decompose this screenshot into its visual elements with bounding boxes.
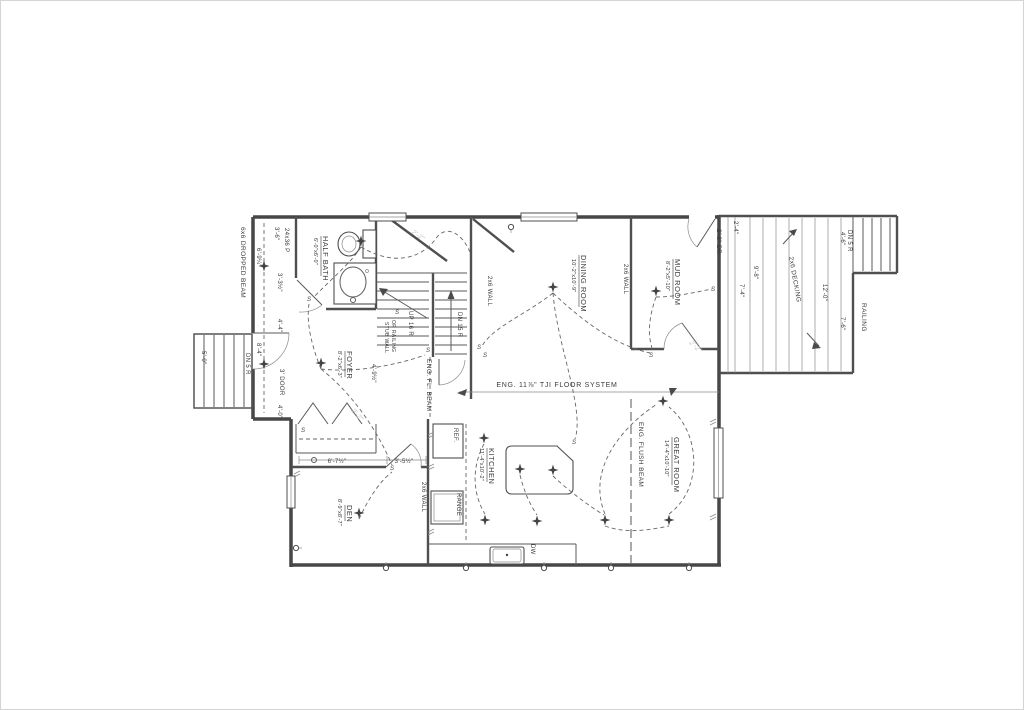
window-den-left [287, 476, 295, 508]
annotations: ENG. 11⅞" TJI FLOOR SYSTEM ENG. FLUSH BE… [239, 227, 867, 555]
svg-text:8'-2"x5'-10": 8'-2"x5'-10" [664, 261, 670, 291]
dim-deck-stairs: 4'-6" [839, 232, 845, 245]
reference-lines [264, 223, 719, 563]
tji-leader [457, 388, 719, 396]
basement-door [439, 359, 465, 385]
switch-symbol: S [711, 287, 715, 293]
room-label-mud-room: MUD ROOM 8'-2"x5'-10" [664, 259, 682, 306]
mud-deck-door [688, 219, 715, 247]
stub-wall-note-1: STUB WALL [383, 322, 389, 353]
svg-text:8'-2"x6'-3": 8'-2"x6'-3" [336, 351, 342, 378]
stub-wall-note-2: OR RAILING [390, 320, 396, 352]
pencil-note: 2'-2" [687, 339, 703, 355]
switch-symbol: S [395, 310, 399, 316]
toilet [338, 230, 376, 258]
svg-text:14'-4"x10'-10": 14'-4"x10'-10" [663, 440, 669, 477]
pencil-note: 2'-2" [409, 228, 426, 243]
front-porch [194, 334, 252, 408]
dim-deck-a: 2'-4" [732, 221, 738, 234]
svg-text:HALF BATH: HALF BATH [321, 236, 330, 281]
deck [719, 216, 897, 373]
railing-note: RAILING [860, 303, 867, 332]
switch-symbol: S [307, 297, 311, 303]
floor-plan-drawing: S S S S S S S S S S HALF BATH 6'-0"x6'-0… [1, 1, 1024, 710]
stair-up-arrow [383, 291, 427, 318]
svg-text:MUD ROOM: MUD ROOM [673, 259, 682, 306]
switch-symbol: S [477, 345, 481, 351]
dim-hall-top: 3'-6" [273, 227, 279, 240]
half-bath-fixtures [334, 230, 376, 304]
switches: S S S S S S S S S S [301, 287, 715, 472]
dw-label: DW [529, 544, 535, 555]
flush-beam-note: ENG. FLUSH BEAM [637, 422, 644, 487]
svg-text:10'-2"x10'-9": 10'-2"x10'-9" [570, 259, 576, 292]
room-label-dining: DINING ROOM 10'-2"x10'-9" [570, 255, 588, 312]
dim-hall-a: 6'-9¼" [255, 248, 261, 267]
dim-foyer: 4'-9½" [370, 364, 377, 383]
window-dining-top [521, 213, 577, 221]
svg-text:8'-9"x8'-7": 8'-9"x8'-7" [336, 499, 342, 526]
window-note: 24x36 P [283, 228, 289, 252]
svg-text:FOYER: FOYER [345, 351, 354, 379]
porch-down-note: DN 5 R [244, 353, 250, 375]
wall-note-den: 2x6 WALL [420, 482, 426, 513]
dim-deck-rail: 7'-6" [839, 317, 845, 330]
room-label-kitchen: KITCHEN 11'-4"x10'-2" [478, 448, 496, 484]
svg-text:6'-0"x6'-0": 6'-0"x6'-0" [312, 238, 318, 265]
ref-label: REF. [452, 428, 458, 442]
mud-deck-door-note: 2'-8" DR [715, 229, 721, 254]
kitchen-island [506, 446, 573, 494]
vanity-sink [334, 263, 376, 304]
front-door-note: 3' DOOR [278, 369, 284, 396]
tji-floor-note: ENG. 11⅞" TJI FLOOR SYSTEM [496, 382, 617, 389]
svg-text:DEN: DEN [345, 505, 354, 522]
wall-note-dining-left: 2x6 WALL [486, 276, 492, 307]
dim-hall-d: 8'-4" [255, 343, 261, 356]
dim-hall-e: 4'-0" [276, 405, 282, 418]
ceiling-lights [259, 236, 675, 527]
floor-plan-canvas: S S S S S S S S S S HALF BATH 6'-0"x6'-0… [0, 0, 1024, 710]
stairs-up-note: UP 16 R [407, 311, 413, 336]
svg-text:11'-4"x10'-2": 11'-4"x10'-2" [478, 448, 484, 481]
window-half-bath-top [369, 213, 406, 221]
room-label-great-room: GREAT ROOM 14'-4"x10'-10" [663, 437, 681, 493]
dim-hall-b: 3'-3½" [276, 273, 283, 292]
switch-symbol: S [390, 466, 394, 472]
room-label-half-bath: HALF BATH 6'-0"x6'-0" [312, 236, 330, 281]
kitchen-sink [490, 547, 524, 564]
dim-deck-c: 9'-8" [752, 266, 758, 279]
deck-stair-treads [863, 218, 890, 271]
switch-symbol: S [649, 353, 653, 359]
switch-symbol: S [483, 353, 487, 359]
svg-text:GREAT ROOM: GREAT ROOM [672, 437, 681, 493]
dim-closet-a: 6'-7½" [328, 458, 347, 465]
switch-symbol: S [572, 440, 576, 446]
wall-note-dining-right: 2x6 WALL [622, 264, 628, 295]
kitchen-fixtures [428, 424, 576, 565]
svg-text:DINING ROOM: DINING ROOM [579, 255, 588, 312]
room-label-foyer: FOYER 8'-2"x6'-3" [336, 351, 354, 379]
stairs-down-note: DN 15 R [456, 312, 462, 338]
dim-closet-b: 3'-5½" [395, 458, 414, 465]
dim-hall-c: 4'-4" [276, 319, 282, 332]
deck-boards [763, 218, 841, 371]
range-label: RANGE [455, 493, 461, 516]
dim-deck-d: 12'-0" [821, 284, 827, 301]
dim-porch: 5'-0" [200, 351, 206, 364]
window-great-room-right [714, 428, 723, 498]
room-label-den: DEN 8'-9"x8'-7" [336, 499, 354, 526]
switch-symbol: S [301, 428, 305, 434]
deck-down-note: DN 5 R [846, 230, 852, 252]
dim-deck-b: 7'-4" [738, 284, 744, 297]
svg-text:KITCHEN: KITCHEN [487, 448, 496, 484]
dropped-beam-note: 6x6 DROPPED BEAM [239, 227, 246, 298]
switch-symbol: S [426, 348, 430, 354]
fl-beam-note: ENG. FL. BEAM [425, 359, 432, 412]
